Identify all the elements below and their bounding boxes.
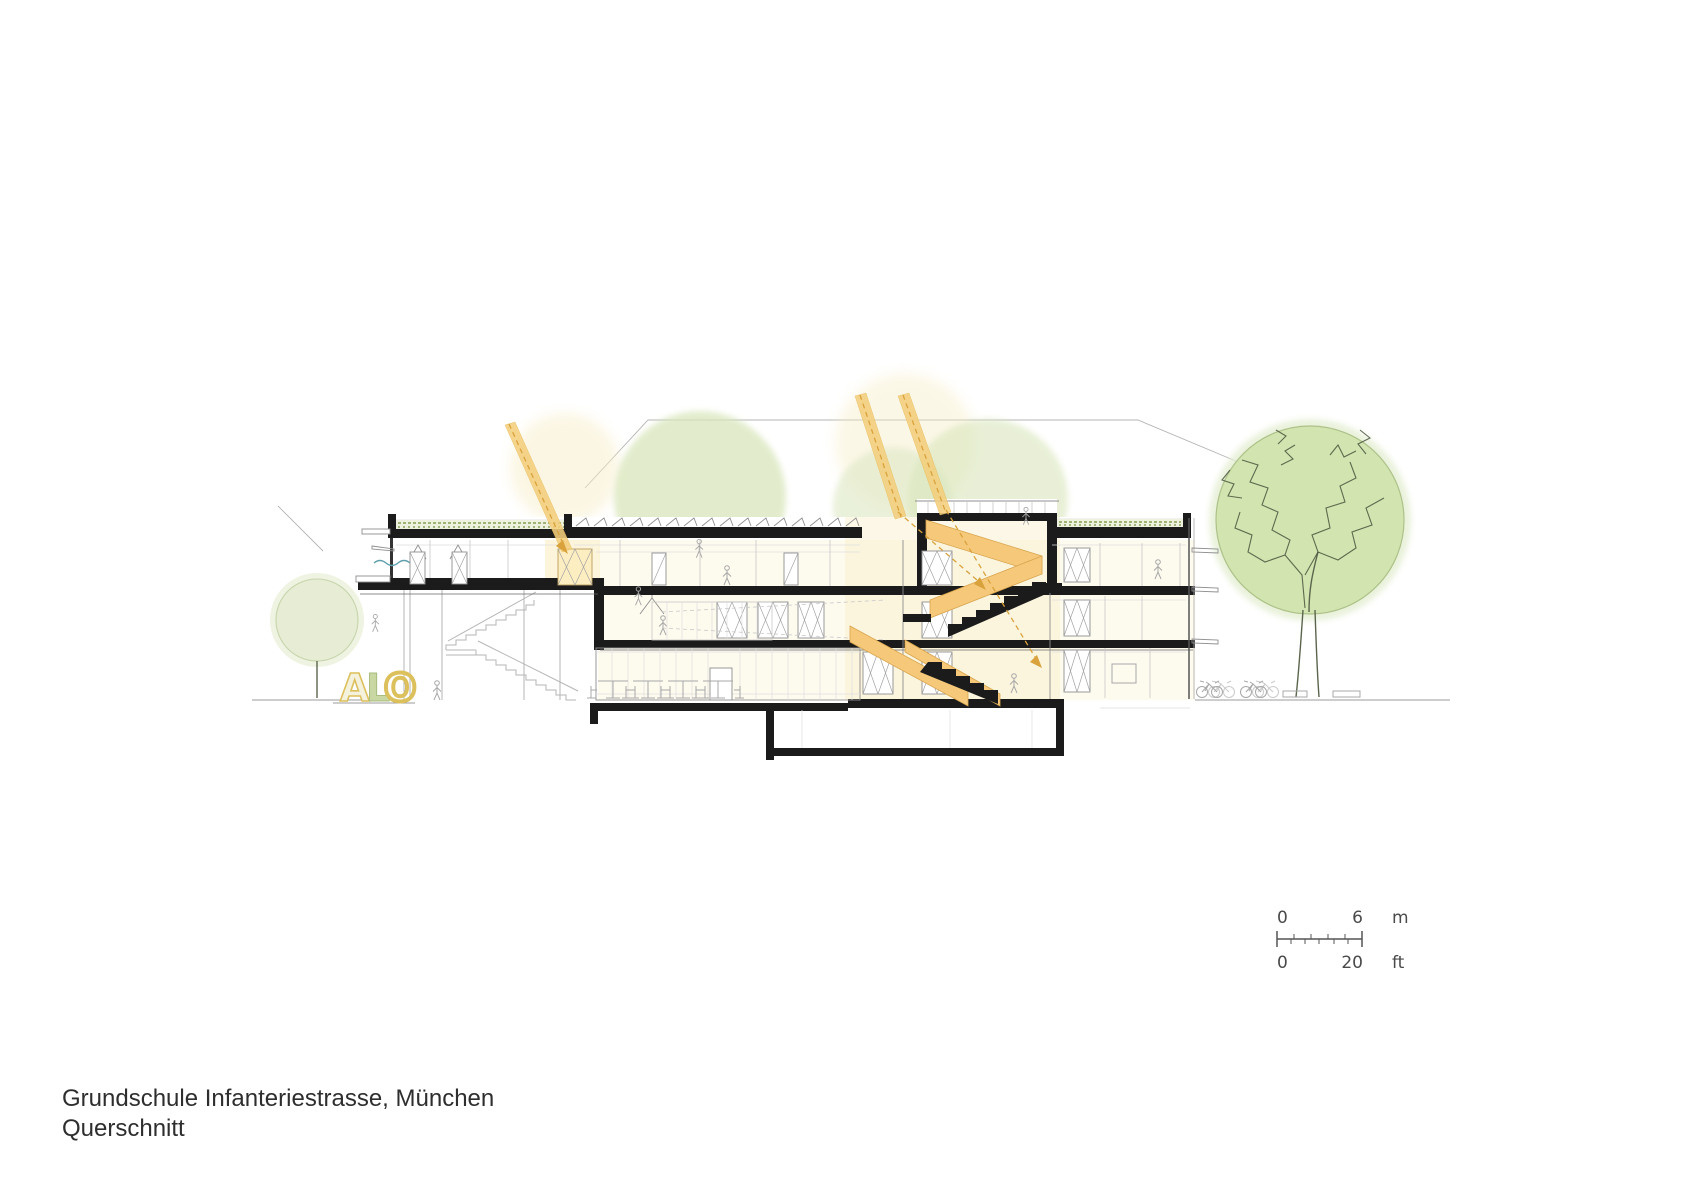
scale-m-end: 6 — [1352, 908, 1363, 928]
scale-ft-start: 0 — [1277, 953, 1288, 973]
scale-ft-unit: ft — [1392, 953, 1405, 973]
drawing-title: Grundschule Infanteriestrasse, München — [62, 1085, 494, 1112]
scale-bar: 0 6 m 0 20 ft — [1277, 908, 1409, 973]
drawing-subtitle: Querschnitt — [62, 1115, 185, 1142]
foundation-basement — [590, 699, 1190, 760]
large-tree — [1209, 419, 1411, 697]
scale-ft-end: 20 — [1341, 953, 1363, 973]
play-letter-o: O — [384, 666, 416, 710]
parapet — [1183, 513, 1191, 538]
title-block: Grundschule Infanteriestrasse, München Q… — [62, 1085, 494, 1142]
scale-m-start: 0 — [1277, 908, 1288, 928]
sunshade-fins — [1192, 548, 1218, 644]
sunlit-door — [558, 549, 592, 585]
background-wire-line — [278, 506, 323, 551]
bicycles — [1197, 681, 1279, 698]
bench — [1283, 691, 1307, 697]
section-drawing-canvas: A L O 0 6 m 0 20 ft Grundschule Infanter… — [0, 0, 1697, 1200]
bench — [1333, 691, 1360, 697]
building-section — [356, 499, 1218, 760]
scale-m-unit: m — [1392, 908, 1409, 928]
section-drawing-page: A L O 0 6 m 0 20 ft Grundschule Infanter… — [0, 0, 1697, 1200]
green-roof-right — [1057, 513, 1191, 538]
